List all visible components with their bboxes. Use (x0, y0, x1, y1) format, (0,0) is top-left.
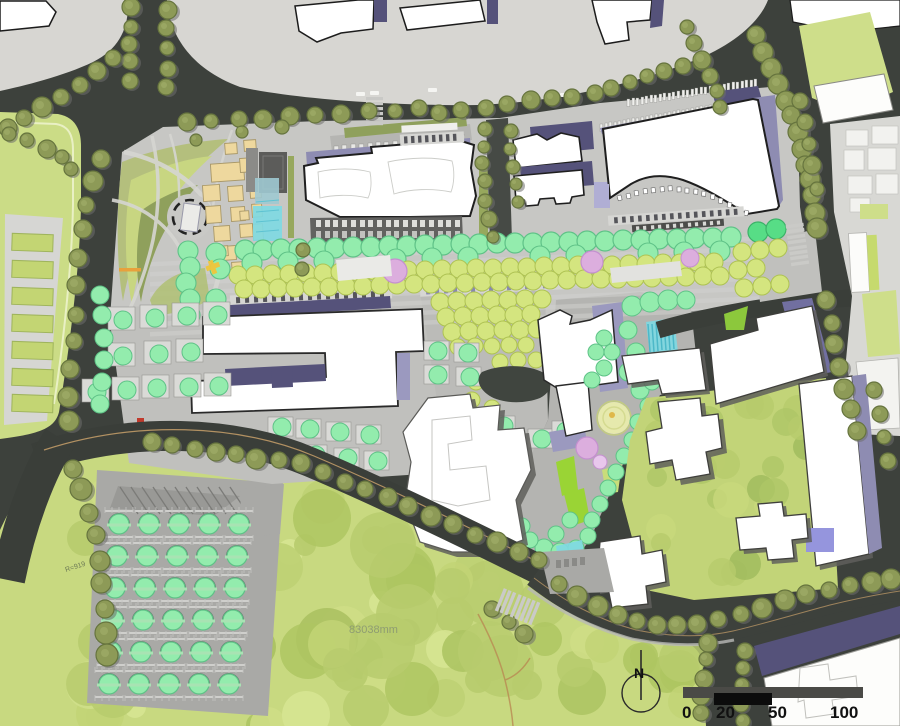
svg-text:100: 100 (830, 703, 858, 722)
svg-text:0: 0 (682, 703, 691, 722)
svg-text:83038mm: 83038mm (349, 624, 398, 636)
svg-text:50: 50 (768, 703, 787, 722)
svg-text:N: N (634, 665, 644, 681)
svg-text:20: 20 (716, 703, 735, 722)
